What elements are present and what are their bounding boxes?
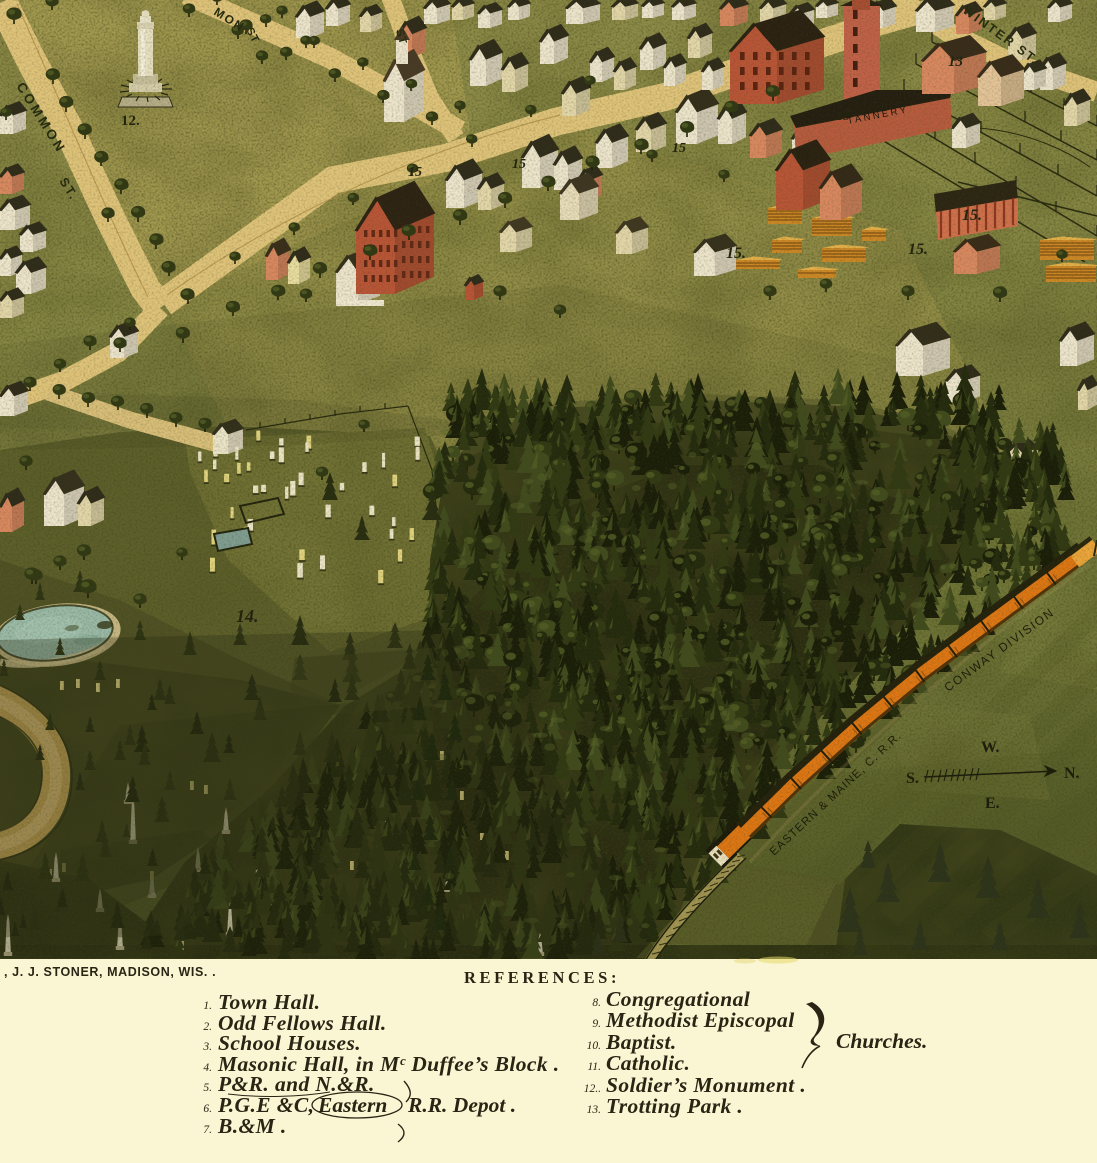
svg-text:9.: 9. [592, 1018, 601, 1030]
svg-text:REFERENCES:: REFERENCES: [464, 968, 620, 987]
svg-text:5.: 5. [203, 1082, 212, 1094]
svg-text:Trotting Park .: Trotting Park . [606, 1094, 743, 1118]
svg-text:11.: 11. [587, 1061, 601, 1073]
svg-text:1.: 1. [203, 1000, 212, 1012]
svg-text:R.R. Depot .: R.R. Depot . [407, 1093, 516, 1117]
svg-text:Eastern: Eastern [317, 1093, 387, 1117]
svg-text:6.: 6. [203, 1103, 212, 1115]
svg-text:Methodist Episcopal: Methodist Episcopal [605, 1008, 795, 1032]
svg-text:10.: 10. [587, 1040, 601, 1052]
svg-text:2.: 2. [203, 1021, 212, 1033]
svg-text:8.: 8. [592, 997, 601, 1009]
svg-text:12..: 12.. [584, 1083, 601, 1095]
svg-text:Churches.: Churches. [836, 1029, 927, 1053]
svg-text:B.&M .: B.&M . [217, 1114, 287, 1138]
svg-text:Catholic.: Catholic. [606, 1051, 690, 1075]
svg-text:3.: 3. [202, 1041, 212, 1053]
svg-text:, J. J. STONER, MADISON, WIS.: , J. J. STONER, MADISON, WIS. . [4, 965, 216, 979]
svg-text:13.: 13. [587, 1104, 601, 1116]
svg-text:4.: 4. [203, 1062, 212, 1074]
svg-text:7.: 7. [203, 1124, 212, 1136]
